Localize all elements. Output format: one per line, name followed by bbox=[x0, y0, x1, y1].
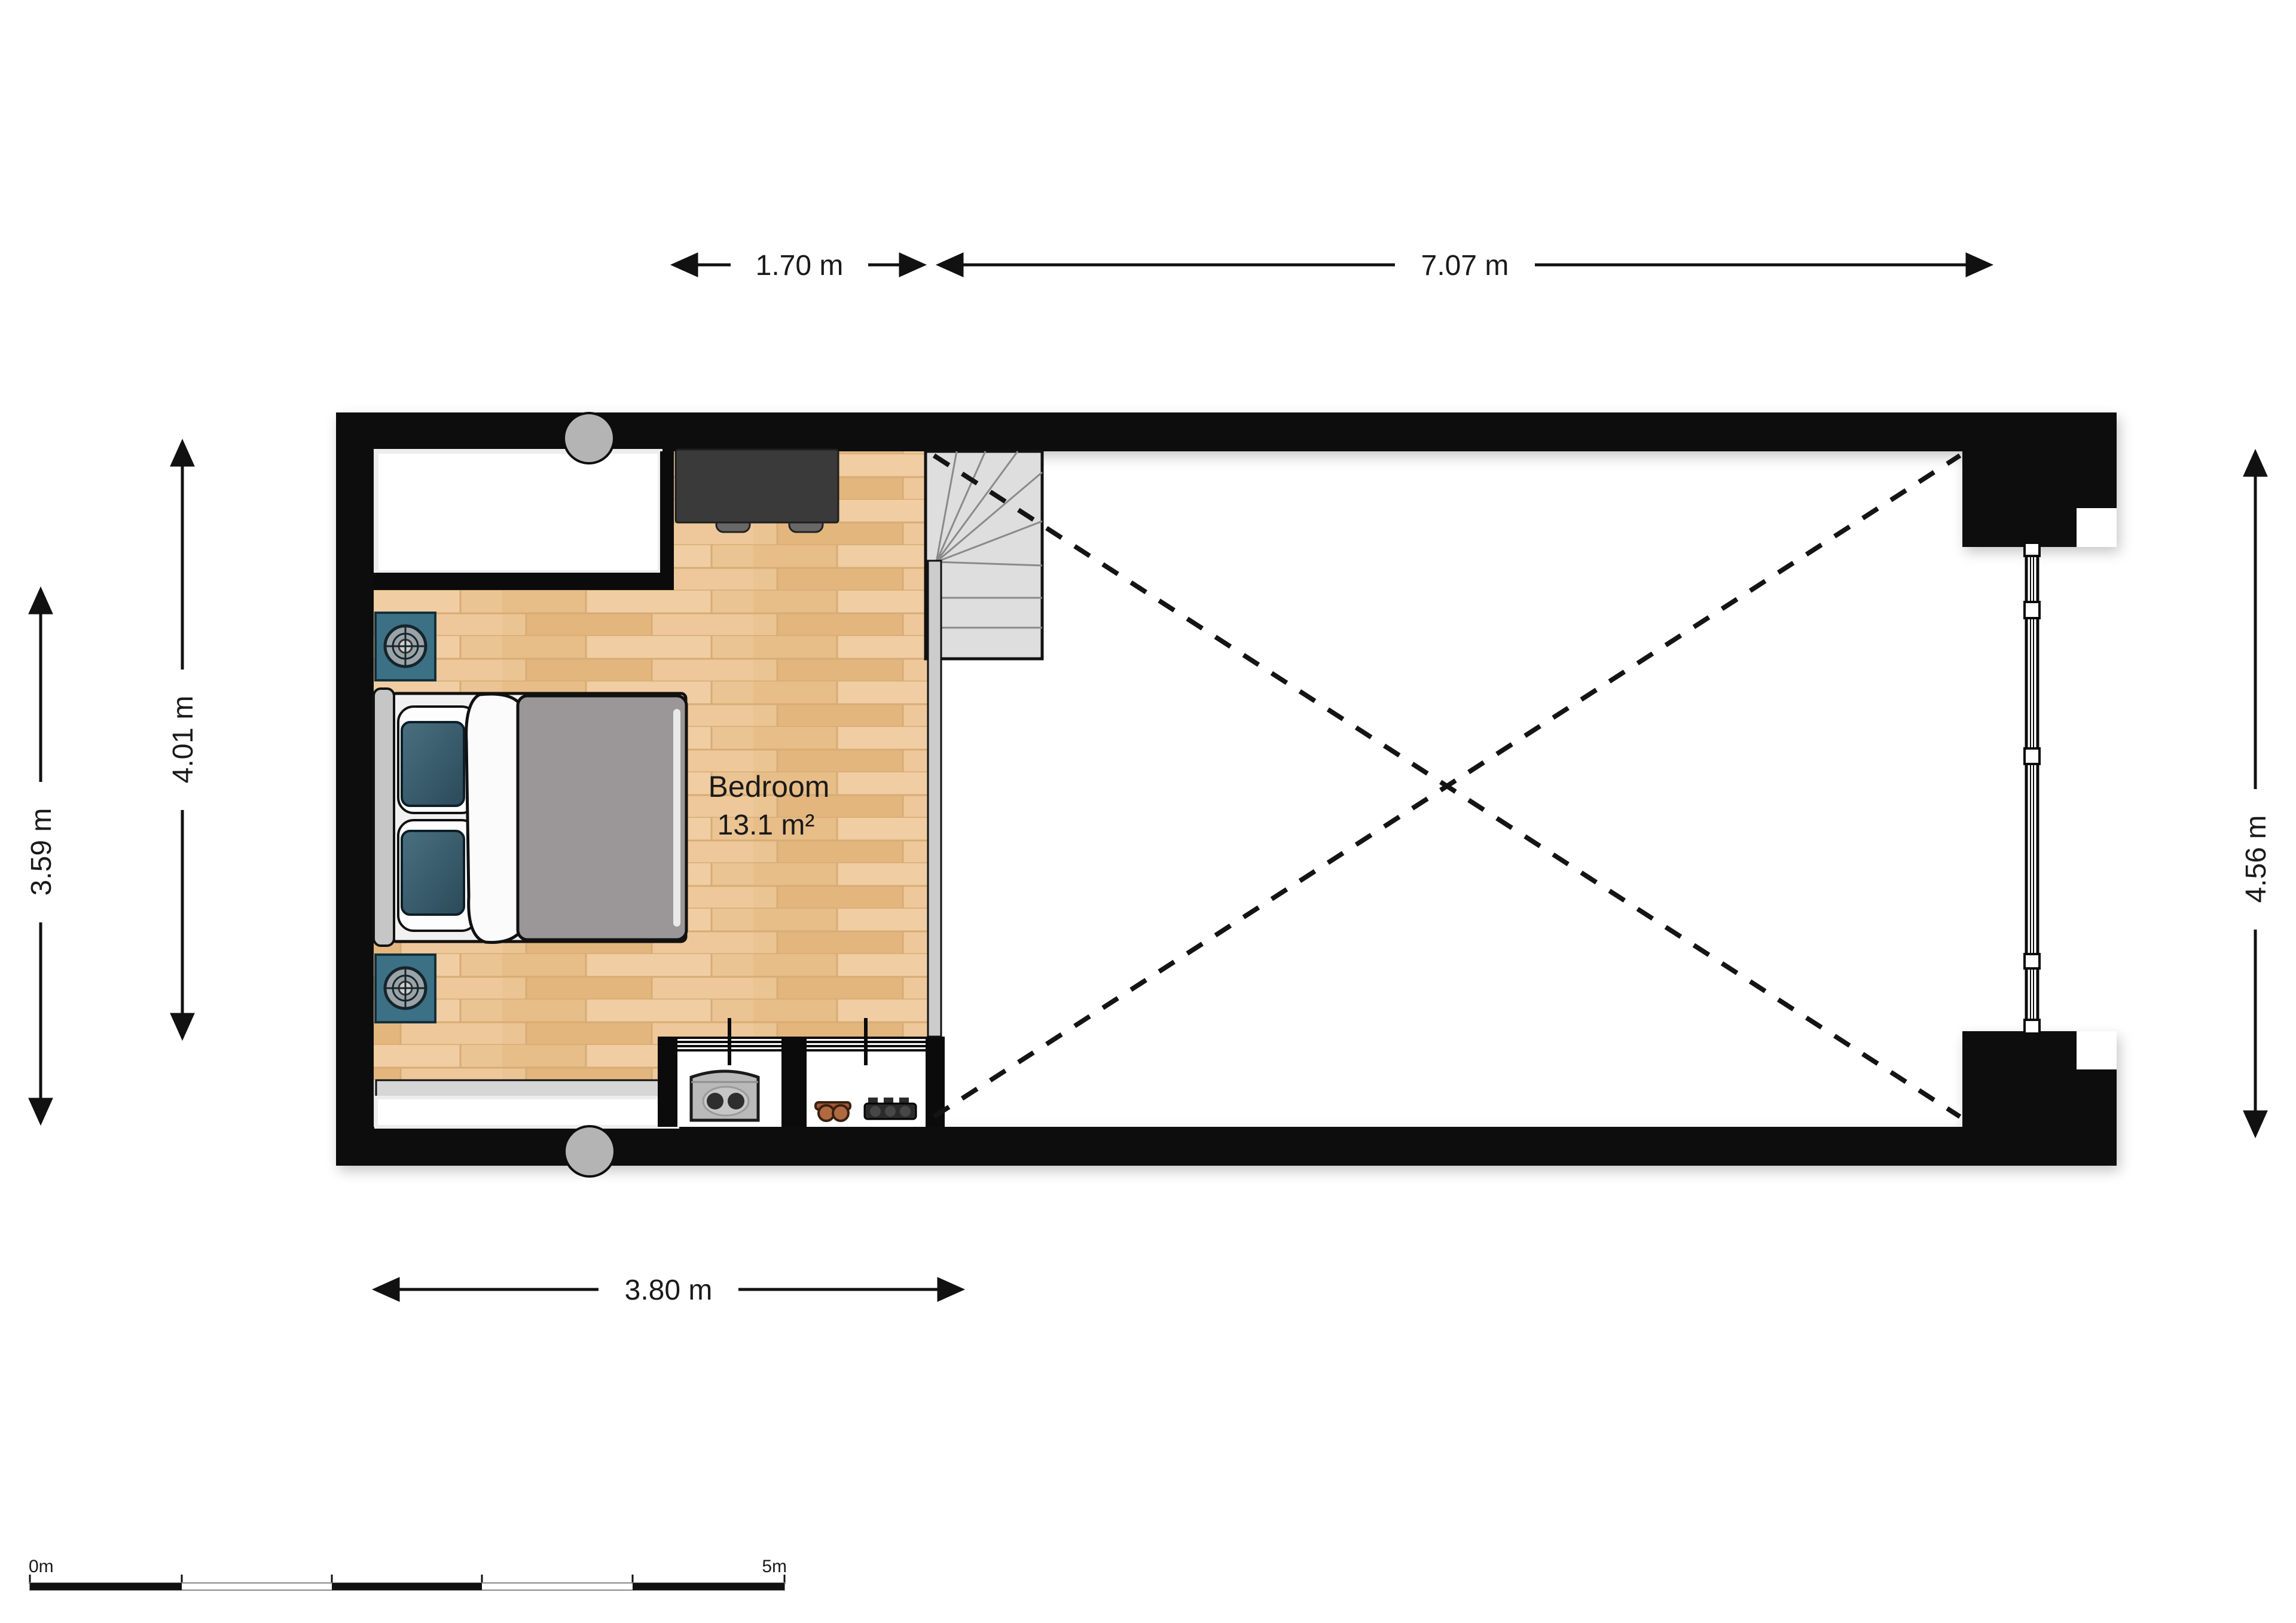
desk bbox=[676, 450, 838, 522]
dimension-label-bottom-bedroom: 3.80 m bbox=[625, 1274, 713, 1306]
arrow-right-icon bbox=[1967, 255, 1990, 275]
dimension-label-right-window: 4.56 m bbox=[2240, 815, 2272, 903]
bed-duvet bbox=[518, 696, 686, 940]
room-name: Bedroom bbox=[709, 770, 830, 803]
arrow-left-icon bbox=[375, 1279, 398, 1300]
arrow-right-icon bbox=[900, 255, 923, 275]
arrow-up-icon bbox=[30, 590, 51, 613]
arrow-down-icon bbox=[30, 1099, 51, 1122]
table-lamp-icon bbox=[385, 626, 426, 667]
scale-start-label: 0m bbox=[29, 1557, 54, 1576]
arrow-left-icon bbox=[939, 255, 962, 275]
boiler bbox=[691, 1071, 758, 1120]
bed-headboard bbox=[374, 689, 394, 946]
floor-plan: Bedroom 13.1 m² bbox=[0, 0, 2296, 1623]
nightstand-top bbox=[375, 613, 435, 680]
closet-bottom-left bbox=[376, 1080, 677, 1127]
void-cross bbox=[934, 456, 1960, 1117]
dimension-label-top-stairs: 1.70 m bbox=[756, 250, 844, 282]
table-lamp-icon bbox=[385, 968, 426, 1008]
room-area: 13.1 m² bbox=[717, 809, 815, 841]
dimension-label-top-void: 7.07 m bbox=[1421, 250, 1509, 282]
arrow-down-icon bbox=[2245, 1112, 2266, 1135]
scale-bar: 0m 5m bbox=[29, 1557, 787, 1590]
arrow-up-icon bbox=[172, 442, 193, 465]
column-bottom bbox=[564, 1126, 615, 1176]
nightstand-bottom bbox=[375, 955, 435, 1022]
floor-plan-page: Bedroom 13.1 m² bbox=[0, 0, 2296, 1623]
dimension-label-left-inner: 4.01 m bbox=[167, 696, 199, 784]
arrow-down-icon bbox=[172, 1014, 193, 1037]
column-top bbox=[564, 413, 614, 463]
dimension-label-left-outer: 3.59 m bbox=[26, 808, 57, 896]
shoes bbox=[816, 1102, 850, 1121]
dimension-right-window bbox=[2245, 453, 2266, 1135]
arrow-up-icon bbox=[2245, 453, 2266, 475]
scale-end-label: 5m bbox=[762, 1557, 787, 1576]
closet-top-left bbox=[374, 451, 674, 590]
stair-balustrade-wall bbox=[928, 561, 941, 1037]
cushion bbox=[402, 722, 464, 806]
arrow-left-icon bbox=[674, 255, 697, 275]
double-bed bbox=[374, 689, 686, 946]
window-right bbox=[2025, 543, 2039, 1034]
desk-area bbox=[676, 450, 838, 532]
bed-sheet-edge bbox=[673, 709, 680, 927]
cushion bbox=[402, 831, 464, 915]
staircase bbox=[926, 451, 1042, 1037]
shoe-rack bbox=[865, 1098, 916, 1119]
arrow-right-icon bbox=[939, 1279, 961, 1300]
